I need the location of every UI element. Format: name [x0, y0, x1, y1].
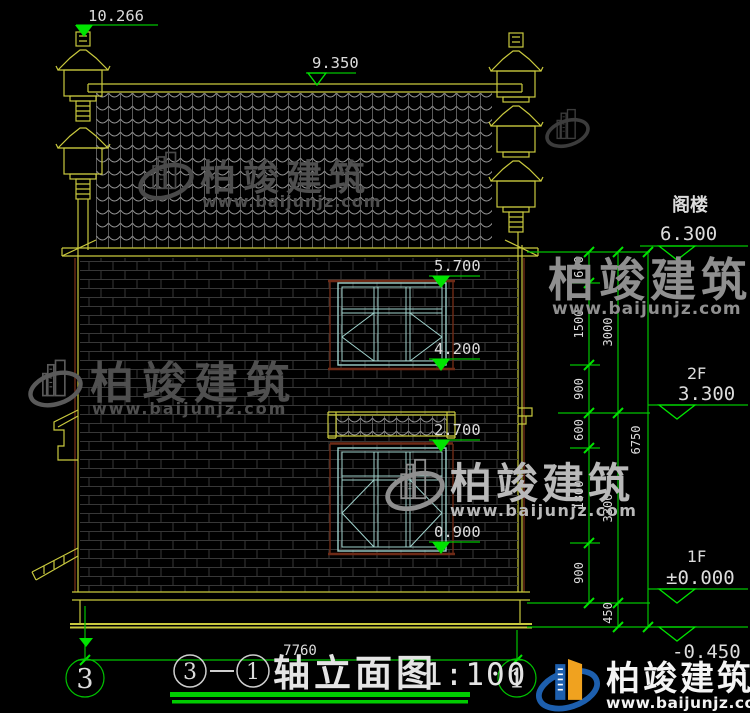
dim-label: 3300	[601, 494, 615, 523]
floor-label: 1F	[687, 547, 706, 566]
finial-neck-icon	[509, 212, 523, 232]
dim-label: 600	[572, 256, 586, 278]
marker-ridge: 9.350	[306, 54, 359, 85]
dim-label: 600	[572, 419, 586, 441]
roof	[62, 84, 538, 256]
corbel-left-lower	[32, 548, 78, 580]
horsehead-finial-icon	[489, 51, 543, 102]
cad-canvas: 600 1500 900 600 1800 900 3000 3300 450 …	[0, 0, 750, 713]
ground-line	[70, 624, 532, 628]
canopy-tiles	[336, 416, 447, 436]
elevation-drawing: 600 1500 900 600 1800 900 3000 3300 450 …	[0, 0, 750, 713]
watermark-logo-icon	[544, 110, 592, 151]
floor-label: 阁楼	[672, 194, 708, 216]
brand-logo: 柏竣建筑 www.baijunjz.com	[534, 659, 750, 713]
dim-label: 900	[572, 562, 586, 584]
wall	[32, 258, 532, 628]
marker-2f: 2F 3.300	[648, 364, 748, 419]
elevation-value: 2.700	[434, 421, 481, 439]
title-axis-from: 3	[183, 660, 197, 685]
drawing-scale: 1:100	[424, 657, 527, 693]
marker-1f: 1F ±0.000	[648, 547, 748, 603]
base-beam	[72, 592, 530, 600]
marker-ground: -0.450	[659, 627, 741, 663]
title-underline	[170, 692, 470, 697]
finial-neck-icon	[76, 179, 90, 199]
dim-label: 900	[572, 378, 586, 400]
elevation-value: 4.200	[434, 340, 481, 358]
roof-ridge	[88, 84, 522, 92]
axis-number: 3	[76, 664, 93, 695]
brand-logo-url: www.baijunjz.com	[606, 694, 750, 712]
elevation-value: 0.900	[434, 523, 481, 541]
elevation-value: 3.300	[678, 383, 735, 405]
dim-label: 3000	[601, 318, 615, 347]
roof-eave	[62, 248, 538, 256]
elevation-value: ±0.000	[666, 567, 735, 589]
horsehead-finial-icon	[489, 161, 543, 212]
finial-neck-icon	[76, 101, 90, 121]
elevation-value: 5.700	[434, 257, 481, 275]
dim-label: 1500	[572, 310, 586, 339]
title-axis-to: 1	[246, 660, 260, 685]
dimension-labels: 600 1500 900 600 1800 900 3000 3300 450 …	[572, 256, 643, 624]
title-underline-2	[172, 700, 468, 704]
brand-logo-icon	[534, 659, 602, 713]
brand-logo-name: 柏竣建筑	[606, 659, 750, 699]
floor-markers: 阁楼 6.300 2F 3.300 1F ±0.000 -0.450	[640, 194, 748, 663]
horsehead-finial-icon	[56, 50, 110, 101]
gable-wall-edge-right	[518, 232, 522, 592]
axis-bubble-left: 3	[66, 659, 104, 697]
watermark-logo-icon	[26, 360, 84, 411]
elevation-value: 9.350	[312, 54, 359, 72]
elevation-value: 6.300	[660, 223, 717, 245]
bracket-right	[518, 408, 532, 424]
marker-attic: 阁楼 6.300	[640, 194, 748, 260]
floor-label: 2F	[687, 364, 706, 383]
drawing-title: 轴立面图	[273, 652, 437, 695]
dim-label: 6750	[629, 426, 643, 455]
plinth	[80, 600, 520, 624]
roof-tile-field	[96, 93, 492, 248]
dim-label: 450	[601, 602, 615, 624]
dim-label: 1800	[572, 481, 586, 510]
finial-chimney-icon	[509, 33, 523, 47]
elevation-value: 10.266	[88, 7, 144, 25]
horsehead-finial-icon	[489, 106, 543, 157]
